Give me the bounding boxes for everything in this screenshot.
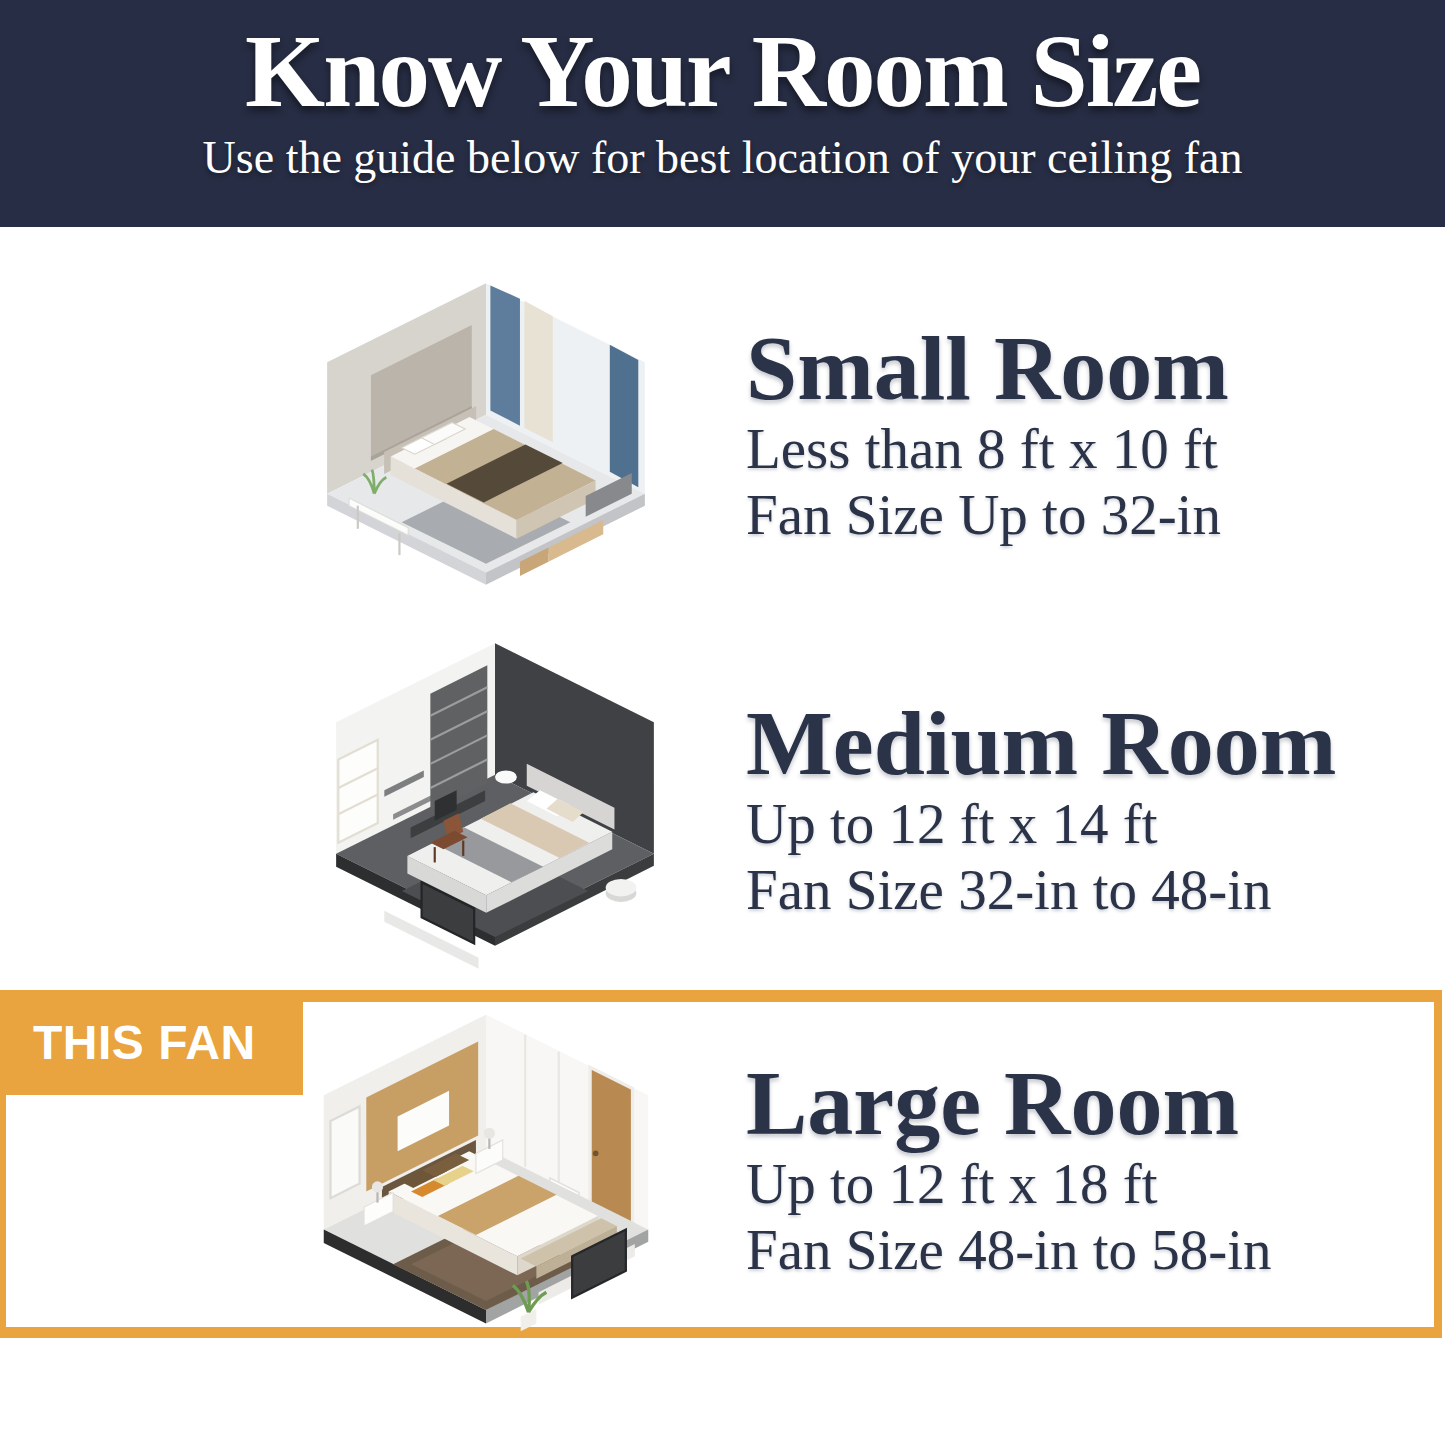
large-bedroom-isometric (256, 999, 716, 1385)
large-room-title: Large Room (746, 1055, 1272, 1151)
small-room-size: Less than 8 ft x 10 ft (746, 416, 1229, 482)
page-subtitle: Use the guide below for best location of… (0, 133, 1445, 184)
medium-room-text: Medium Room Up to 12 ft x 14 ft Fan Size… (746, 695, 1336, 923)
room-size-guide: Know Your Room Size Use the guide below … (0, 0, 1445, 1445)
this-fan-badge: THIS FAN (0, 990, 303, 1095)
this-fan-badge-label: THIS FAN (33, 1015, 256, 1070)
header-banner: Know Your Room Size Use the guide below … (0, 0, 1445, 227)
large-room-illustration (256, 999, 716, 1385)
small-room-illustration (261, 268, 711, 646)
large-room-text: Large Room Up to 12 ft x 18 ft Fan Size … (746, 1055, 1272, 1283)
medium-room-illustration (270, 628, 720, 1006)
small-bedroom-isometric (261, 268, 711, 646)
large-room-fan: Fan Size 48-in to 58-in (746, 1217, 1272, 1283)
medium-bedroom-isometric (270, 628, 720, 1006)
small-room-title: Small Room (746, 320, 1229, 416)
medium-room-title: Medium Room (746, 695, 1336, 791)
small-room-text: Small Room Less than 8 ft x 10 ft Fan Si… (746, 320, 1229, 548)
small-room-fan: Fan Size Up to 32-in (746, 482, 1229, 548)
medium-room-size: Up to 12 ft x 14 ft (746, 791, 1336, 857)
medium-room-fan: Fan Size 32-in to 48-in (746, 857, 1336, 923)
page-title: Know Your Room Size (0, 18, 1445, 125)
large-room-size: Up to 12 ft x 18 ft (746, 1151, 1272, 1217)
